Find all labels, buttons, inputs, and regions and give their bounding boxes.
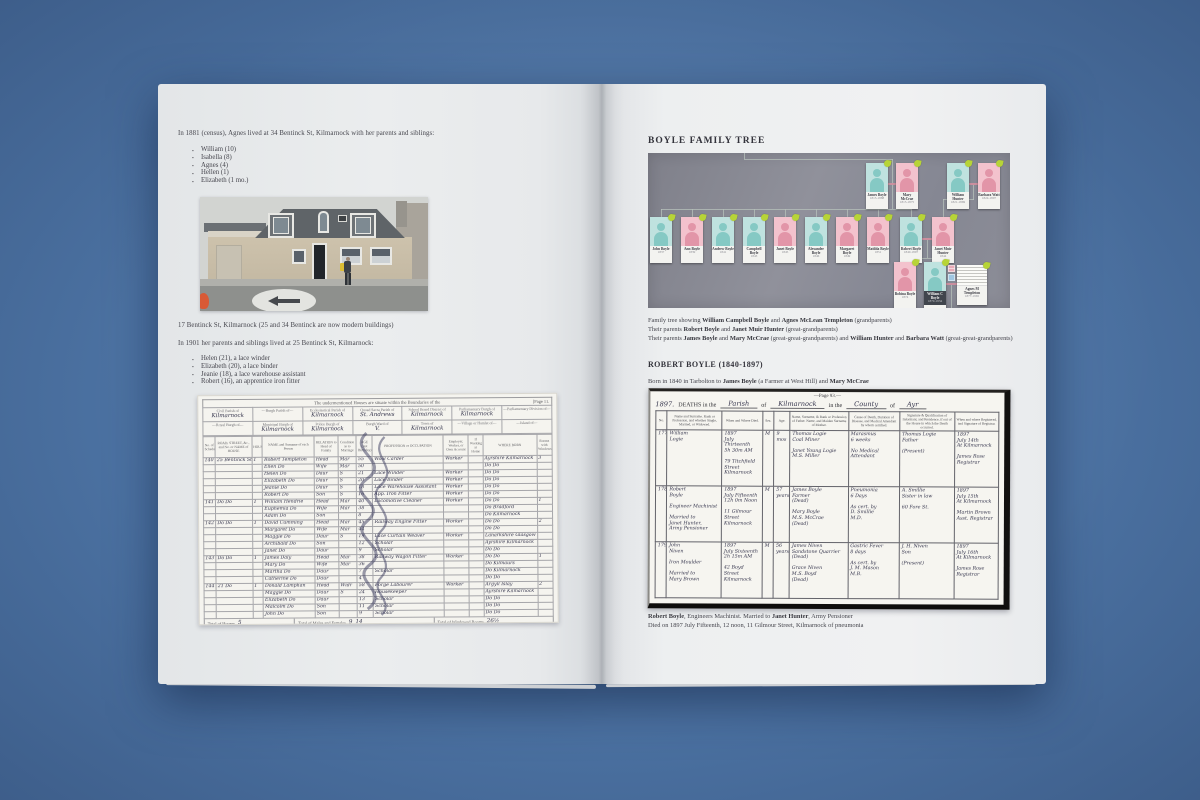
tree-person-card: Matilda Boyle1851	[867, 217, 889, 263]
tree-person-card: Janet Muir Hunter1844	[932, 217, 954, 263]
person-dates: 1849	[836, 255, 858, 259]
census-cell	[445, 610, 470, 617]
bullet-item: Isabella (8)	[190, 154, 390, 162]
text-run: (great-great-grandparents)	[944, 335, 1013, 342]
district-value: Kilmarnock	[304, 412, 351, 419]
text-run: Born in 1840 in Tarbolton to	[648, 378, 723, 385]
leaf-hint-icon	[964, 159, 972, 167]
register-cell: M	[762, 430, 774, 486]
leaf-hint-icon	[822, 213, 830, 221]
district-cell: Ecclesiastical Parish ofKilmarnock	[302, 407, 352, 422]
census-cell: 25 Bentinck St	[215, 458, 251, 465]
person-dates: 1851	[867, 251, 889, 255]
text-run: Mary McCrae	[730, 335, 769, 342]
book-spread: In 1881 (census), Agnes lived at 34 Bent…	[158, 84, 1046, 684]
census-column-header: WHERE BORN	[483, 435, 537, 456]
totals-females-value: 14	[355, 620, 362, 626]
register-of: of	[890, 403, 895, 409]
portrait-silhouette	[712, 217, 734, 246]
leaf-hint-icon	[760, 213, 768, 221]
card-label: Janet Muir Hunter1844	[932, 246, 954, 260]
portrait-silhouette	[947, 163, 969, 192]
text-run: and	[717, 335, 729, 342]
totals-rooms-value: 26½	[487, 619, 500, 625]
tree-connector-line	[911, 209, 912, 217]
register-cell: John Niven Iron Moulder Married to Mary …	[666, 542, 721, 598]
portrait-silhouette	[978, 163, 1000, 192]
district-cell: —Royal Burgh of—	[203, 422, 253, 437]
leaf-hint-icon	[729, 213, 737, 221]
register-column-header: Name, Surname, & Rank or Profession of F…	[790, 411, 848, 430]
leaf-hint-icon	[791, 213, 799, 221]
card-label: Ann Boyle1839	[681, 246, 703, 256]
person-dates: 1815-1888	[866, 197, 888, 201]
register-cell: 179	[655, 542, 667, 598]
card-label: Andrew Boyle1841	[712, 246, 734, 256]
text-run: Robert Boyle	[684, 326, 720, 333]
register-table: No.Name and Surname. Rank or Profession,…	[655, 410, 1000, 599]
register-cell: J. H. Niven Son (Present)	[899, 543, 954, 599]
district-cell: School Board District ofKilmarnock	[402, 406, 452, 421]
census-cell: Robert Templeton	[263, 457, 315, 464]
family-tree-image: James Boyle1815-1888Mary McCrae1815-1875…	[648, 153, 1010, 308]
bullet-item: Jeanie (18), a lace warehouse assistant	[190, 371, 440, 379]
tree-caption-line: Family tree showing William Campbell Boy…	[648, 316, 1018, 325]
portrait-silhouette	[774, 217, 796, 246]
district-value	[454, 426, 501, 433]
tree-connector-line	[878, 209, 879, 217]
bullet-item: Elizabeth (1 mo.)	[190, 177, 390, 185]
bullet-item: Elizabeth (20), a lace binder	[190, 363, 440, 371]
tree-connector-line	[744, 159, 893, 160]
census-cell: Ayrshire Kilmarnock	[484, 540, 538, 547]
portrait-silhouette	[743, 217, 765, 246]
tree-person-card: William Hunter1821-1869	[947, 163, 969, 209]
text-run: (grandparents)	[853, 317, 892, 324]
register-column-header: Sex.	[763, 411, 774, 430]
census-cell	[253, 612, 264, 619]
census-page-number: [Page 11.	[533, 399, 549, 404]
tree-person-card: Robert Boyle1840-1897	[900, 217, 922, 263]
card-label: Robert Boyle1840-1897	[900, 246, 922, 256]
portrait-silhouette	[805, 217, 827, 246]
district-cell: Town ofKilmarnock	[402, 420, 452, 435]
person-dates: 1815-1875	[896, 201, 918, 205]
chimney	[396, 201, 407, 227]
register-column-header: When and Where Died.	[722, 411, 763, 430]
district-value	[254, 413, 301, 420]
census-column-header: Rooms with Windows	[537, 435, 553, 456]
district-value	[503, 411, 550, 418]
mini-record-icon	[948, 274, 955, 281]
tree-person-card: James Boyle1815-1888	[866, 163, 888, 209]
text-run: (a Farmer at West Hill) and	[757, 378, 830, 385]
text-run: and	[769, 317, 781, 324]
tree-person-card: Ann Boyle1839	[681, 217, 703, 263]
card-label: Mary McCrae1815-1875	[896, 192, 918, 206]
portrait-silhouette	[836, 217, 858, 246]
district-value	[204, 427, 251, 434]
district-cell: Municipal Burgh ofKilmarnock	[253, 421, 303, 436]
register-cell: M	[762, 486, 774, 542]
register-cell: William Logie	[667, 430, 722, 486]
register-year: 1897.	[655, 400, 674, 408]
person-dates: 1821-1869	[947, 201, 969, 205]
portrait-silhouette	[957, 265, 987, 286]
tree-caption-line: Their parents James Boyle and Mary McCra…	[648, 334, 1038, 343]
district-label: —Village or Hamlet of—	[454, 421, 501, 426]
text-run: Robert Boyle	[648, 613, 684, 620]
leaf-hint-icon	[949, 213, 957, 221]
district-value: Kilmarnock	[404, 412, 451, 419]
text-run: James Boyle	[684, 335, 718, 342]
window-right	[370, 247, 392, 265]
text-run: Family tree showing	[648, 317, 702, 324]
register-column-header: Cause of Death, Duration of Disease, and…	[848, 412, 899, 431]
register-cell: 1897 July 16th At Kilmarnock James Rose …	[954, 543, 999, 599]
tree-person-card: Bobina Boyle1874	[894, 262, 916, 308]
register-cell: 56 years	[773, 542, 789, 598]
robert-born-line: Born in 1840 in Tarbolton to James Boyle…	[648, 377, 1018, 386]
bullet-item: William (10)	[190, 146, 390, 154]
leaf-hint-icon	[911, 258, 919, 266]
register-cell: Thomas Logie Father (Present)	[899, 431, 954, 487]
register-in-the: in the	[829, 403, 843, 409]
census-column-header: ROAD, STREET, &c., and No. or NAME of HO…	[215, 437, 252, 458]
census-banner-text: The undermentioned Houses are situate wi…	[314, 400, 440, 406]
card-label: Janet Boyle1845	[774, 246, 796, 256]
district-value: Kilmarnock	[254, 427, 301, 434]
person-dates: 1839	[681, 251, 703, 255]
tree-person-card: Barbara Watt1824-1897	[978, 163, 1000, 209]
census-column-header: If Working at Home	[468, 435, 483, 456]
portrait-silhouette	[894, 262, 916, 291]
census-cell: 142	[204, 521, 216, 528]
card-label: Bobina Boyle1874	[894, 291, 916, 301]
tree-connector-line	[692, 209, 693, 217]
card-label: Alexander Boyle1846	[805, 246, 827, 260]
register-cell: James Boyle Farmer (Dead) Mary Boyle M.S…	[789, 486, 848, 542]
register-cell: M	[762, 542, 774, 598]
arched-attic-window	[318, 211, 329, 233]
text-run: William Campbell Boyle	[702, 317, 769, 324]
census-column-header: No. of Schedule	[203, 437, 215, 458]
tree-person-card: John Boyle1837	[650, 217, 672, 263]
census-cell	[339, 611, 357, 618]
siblings-1901-list: Helen (21), a lace winderElizabeth (20),…	[190, 355, 440, 386]
register-title-line: 1897. DEATHS in the Parish of Kilmarnock…	[655, 399, 999, 410]
siblings-1881-list: William (10)Isabella (8)Agnes (4)Hellen …	[190, 146, 390, 185]
bullet-item: Robert (16), an apprentice iron fitter	[190, 378, 440, 386]
card-label: Matilda Boyle1851	[867, 246, 889, 256]
register-cell: 177	[656, 430, 668, 486]
bullet-item: Hellen (1)	[190, 169, 390, 177]
person-dates: 1877-1965	[957, 295, 987, 299]
register-column-header: Age.	[774, 411, 790, 430]
district-value: St. Andrews	[354, 412, 401, 419]
portrait-silhouette	[867, 217, 889, 246]
pedestrian	[344, 261, 351, 273]
paragraph-1881: In 1881 (census), Agnes lived at 34 Bent…	[178, 130, 508, 138]
register-cell: A. Smillie Sister in law 60 Fore St.	[899, 487, 954, 543]
tree-connector-line	[723, 209, 724, 217]
tree-person-card: Campbell Boyle1843	[743, 217, 765, 263]
census-cell: Ayrshire Kilmarnock	[483, 456, 537, 463]
tree-connector-line	[661, 209, 912, 210]
register-cell: James Niven Sandstone Quarrier (Dead) Gr…	[789, 542, 848, 598]
text-run: and	[894, 335, 906, 342]
person-dates: 1870-1934	[924, 300, 946, 304]
tree-person-card: Margaret Boyle1849	[836, 217, 858, 263]
pavement	[200, 279, 428, 286]
census-column-header: PROFESSION or OCCUPATION	[372, 435, 443, 456]
district-cell: —Island of—	[502, 419, 552, 434]
person-dates: 1824-1897	[978, 197, 1000, 201]
portrait-silhouette	[681, 217, 703, 246]
census-cell	[470, 610, 485, 617]
register-cell: Pneumonia 6 Days As cert. by D. Smillie …	[848, 487, 900, 543]
tree-person-card: Agnes M Templeton1877-1965	[957, 265, 987, 305]
text-run: (great-grandparents)	[784, 326, 838, 333]
district-value: Kilmarnock	[204, 413, 251, 420]
totals-rooms-label: Total of Windowed Rooms	[437, 619, 483, 624]
census-column-header: HOUSES	[252, 437, 263, 458]
register-cell: 1897 July Sixteenth 2h 15m AM 42 Boyd St…	[721, 542, 762, 598]
register-cell: 1897 July Thirteenth 5h 30m AM 79 Titchf…	[722, 430, 763, 486]
front-door	[312, 243, 327, 281]
text-run: Agnes McLean Templeton	[782, 317, 853, 324]
leaf-hint-icon	[995, 159, 1003, 167]
tree-person-card: Andrew Boyle1841	[712, 217, 734, 263]
district-cell: Civil Parish ofKilmarnock	[203, 407, 253, 422]
photo-caption: 17 Bentinck St, Kilmarnock (25 and 34 Be…	[178, 322, 538, 330]
card-label: William C Boyle1870-1934	[924, 291, 946, 305]
tree-connector-line	[943, 199, 944, 217]
portrait-silhouette	[900, 217, 922, 246]
leaf-hint-icon	[853, 213, 861, 221]
register-parish-word: Parish	[720, 400, 757, 409]
totals-persons-label: Total of Males and Females	[298, 620, 346, 625]
register-county-word: County	[846, 400, 886, 409]
totals-houses-value: 5	[238, 620, 242, 625]
register-column-header: Signature & Qualification of Informant, …	[900, 412, 955, 431]
portrait-silhouette	[932, 217, 954, 246]
text-run: Barbara Watt	[906, 335, 944, 342]
census-cell: Lace Warehouse Assistant	[373, 484, 444, 491]
text-run: Janet Hunter	[772, 613, 808, 620]
mini-record-icon	[948, 265, 955, 272]
register-column-header: When and where Registered, and Signature…	[954, 412, 998, 431]
district-cell: Parliamentary Burgh ofKilmarnock	[452, 406, 502, 421]
leaf-hint-icon	[982, 261, 990, 269]
tree-connector-line	[816, 209, 817, 217]
district-value: Kilmarnock	[404, 426, 451, 433]
tree-connector-line	[754, 209, 755, 217]
census-cell: Lanarkshire Glasgow	[484, 533, 538, 540]
district-cell: Quoad Sacra Parish ofSt. Andrews	[352, 406, 402, 421]
card-label: John Boyle1837	[650, 246, 672, 256]
totals-houses-label: Total of Houses	[208, 621, 235, 625]
register-cell: Thomas Logie Coal Miner Janet Young Logi…	[790, 430, 849, 486]
register-cell: 1897 July 15th At Kilmarnock Martin Brow…	[954, 487, 999, 543]
tree-connector-line	[927, 240, 928, 258]
leaf-hint-icon	[667, 213, 675, 221]
register-column-header: Name and Surname. Rank or Profession, an…	[667, 411, 722, 430]
tree-person-card: Mary McCrae1815-1875	[896, 163, 918, 209]
census-column-header: Condition as to Marriage	[338, 436, 357, 457]
district-label: —Parliamentary Division of—	[503, 407, 550, 412]
census-cell: Do Do	[484, 610, 538, 617]
text-run: , Engineers Machinist. Married to	[684, 613, 772, 620]
register-caption-line: Robert Boyle, Engineers Machinist. Marri…	[648, 612, 1028, 621]
register-column-header: No.	[656, 411, 667, 430]
house-photo	[200, 197, 428, 311]
person-dates: 1874	[894, 296, 916, 300]
left-page: In 1881 (census), Agnes lived at 34 Bent…	[158, 84, 602, 684]
road-arrow-marking	[252, 289, 316, 311]
right-page: BOYLE FAMILY TREE James Boyle1815-1888Ma…	[602, 84, 1046, 684]
register-cell: Marasmus 6 weeks No Medical Attendant	[848, 431, 900, 487]
tree-connector-line	[785, 209, 786, 217]
robert-boyle-heading: ROBERT BOYLE (1840-1897)	[648, 360, 763, 369]
census-column-header: Employer, Worker, or Own Account	[443, 435, 468, 456]
person-dates: 1840-1897	[900, 251, 922, 255]
text-run: James Boyle	[723, 378, 757, 385]
photo-of-open-book: In 1881 (census), Agnes lived at 34 Bent…	[0, 0, 1200, 800]
text-run: William Hunter	[850, 335, 893, 342]
register-cell: 57 years	[773, 486, 789, 542]
census-cell: 9	[358, 611, 374, 618]
orange-object	[200, 293, 209, 309]
card-label: William Hunter1821-1869	[947, 192, 969, 206]
census-column-header: NAME and Surname of each Person	[262, 436, 314, 457]
person-dates: 1843	[743, 255, 765, 259]
text-run: Their parents	[648, 335, 684, 342]
bullet-item: Agnes (4)	[190, 162, 390, 170]
census-cell	[538, 610, 553, 617]
district-cell: —Village or Hamlet of—	[452, 420, 502, 435]
roof-vent	[338, 215, 347, 222]
district-cell: Burgh Ward ofV.	[352, 421, 402, 436]
portrait-silhouette	[866, 163, 888, 192]
census-column-header: RELATION to Head of Family	[314, 436, 338, 457]
census-cell: Son	[315, 611, 339, 618]
census-cell: 143	[204, 556, 216, 563]
dormer-window-right	[350, 213, 376, 238]
person-dates: 1837	[650, 251, 672, 255]
district-value: Kilmarnock	[304, 427, 351, 434]
district-cell: Police Burgh ofKilmarnock	[303, 421, 353, 436]
tree-connector-line	[847, 209, 848, 217]
census-cell: Ayrshire Kilmarnock	[484, 589, 538, 596]
leaf-hint-icon	[698, 213, 706, 221]
census-cell: John Do	[264, 611, 316, 618]
census-cell	[216, 612, 252, 619]
census-cell: 140	[203, 458, 215, 465]
census-document: The undermentioned Houses are situate wi…	[197, 393, 559, 626]
tree-connector-line	[951, 285, 952, 308]
register-caption-line: Died on 1897 July Fifteenth, 12 noon, 11…	[648, 621, 1028, 630]
portrait-silhouette	[896, 163, 918, 192]
pedestrian-head	[346, 257, 350, 261]
census-table: No. of ScheduleROAD, STREET, &c., and No…	[202, 434, 553, 619]
census-cell: 144	[204, 584, 216, 591]
text-run: Their parents	[648, 326, 684, 333]
district-cell: —Parliamentary Division of—	[502, 405, 552, 420]
leaf-hint-icon	[884, 213, 892, 221]
person-dates: 1846	[805, 255, 827, 259]
card-label: Margaret Boyle1849	[836, 246, 858, 260]
portrait-silhouette	[924, 262, 946, 291]
register-county-name: Ayr	[899, 400, 926, 409]
tree-connector-line	[661, 209, 662, 217]
register-deaths-label: DEATHS in the	[678, 402, 716, 408]
census-cell	[204, 612, 216, 619]
text-run: , Army Pensioner	[808, 613, 853, 620]
tree-connector-line	[973, 185, 974, 200]
card-label: Agnes M Templeton1877-1965	[957, 286, 987, 300]
death-register-document: —Page 93.— 1897. DEATHS in the Parish of…	[648, 388, 1011, 610]
text-run: Janet Muir Hunter	[732, 326, 784, 333]
leaf-hint-icon	[917, 213, 925, 221]
card-label: Campbell Boyle1843	[743, 246, 765, 260]
register-cell: 9 mos	[774, 430, 790, 486]
register-cell: 178	[655, 486, 667, 542]
paragraph-1901: In 1901 her parents and siblings lived a…	[178, 340, 508, 348]
census-district-table: Civil Parish ofKilmarnock—Burgh Parish o…	[202, 405, 552, 437]
person-dates: 1841	[712, 251, 734, 255]
district-value: V.	[354, 426, 401, 433]
totals-males-value: 9	[349, 620, 353, 626]
census-cell: 141	[203, 500, 215, 507]
text-run: (great-great-grandparents) and	[769, 335, 850, 342]
register-cell: Gastric Fever 8 days As cert. by J. M. M…	[848, 543, 900, 599]
tree-caption-line: Their parents Robert Boyle and Janet Mui…	[648, 325, 1018, 334]
text-run: Mary McCrae	[830, 378, 869, 385]
tree-person-card: Janet Boyle1845	[774, 217, 796, 263]
tree-person-card: William C Boyle1870-1934	[924, 262, 946, 308]
card-label: Barbara Watt1824-1897	[978, 192, 1000, 202]
register-place: Kilmarnock	[770, 400, 824, 409]
portrait-silhouette	[650, 217, 672, 246]
bullet-item: Helen (21), a lace winder	[190, 355, 440, 363]
census-cell: Scholar	[374, 610, 445, 617]
register-cell: 1897 July 14th At Kilmarnock James Rose …	[954, 431, 999, 487]
person-dates: 1845	[774, 251, 796, 255]
register-cell: 1897 July Fifteenth 12h 0m Noon 11 Gilmo…	[721, 486, 762, 542]
leaf-hint-icon	[913, 159, 921, 167]
census-column-header: AGE (last Birthday)	[356, 436, 372, 457]
census-totals-row: Total of Houses5 Total of Males and Fema…	[204, 617, 554, 625]
district-value	[503, 425, 550, 432]
district-value: Kilmarnock	[454, 411, 501, 418]
page-title: BOYLE FAMILY TREE	[648, 136, 765, 146]
tree-person-card: Alexander Boyle1846	[805, 217, 827, 263]
pedestrian-legs	[345, 273, 351, 285]
register-cell: Robert Boyle Engineer Machinist Married …	[667, 486, 722, 542]
register-of: of	[761, 403, 766, 409]
window-small	[292, 249, 306, 264]
leaf-hint-icon	[883, 159, 891, 167]
text-run: and	[720, 326, 732, 333]
garage-door	[216, 245, 242, 281]
dormer-window-left	[268, 213, 294, 238]
district-cell: —Burgh Parish of—	[253, 407, 303, 422]
card-label: James Boyle1815-1888	[866, 192, 888, 202]
